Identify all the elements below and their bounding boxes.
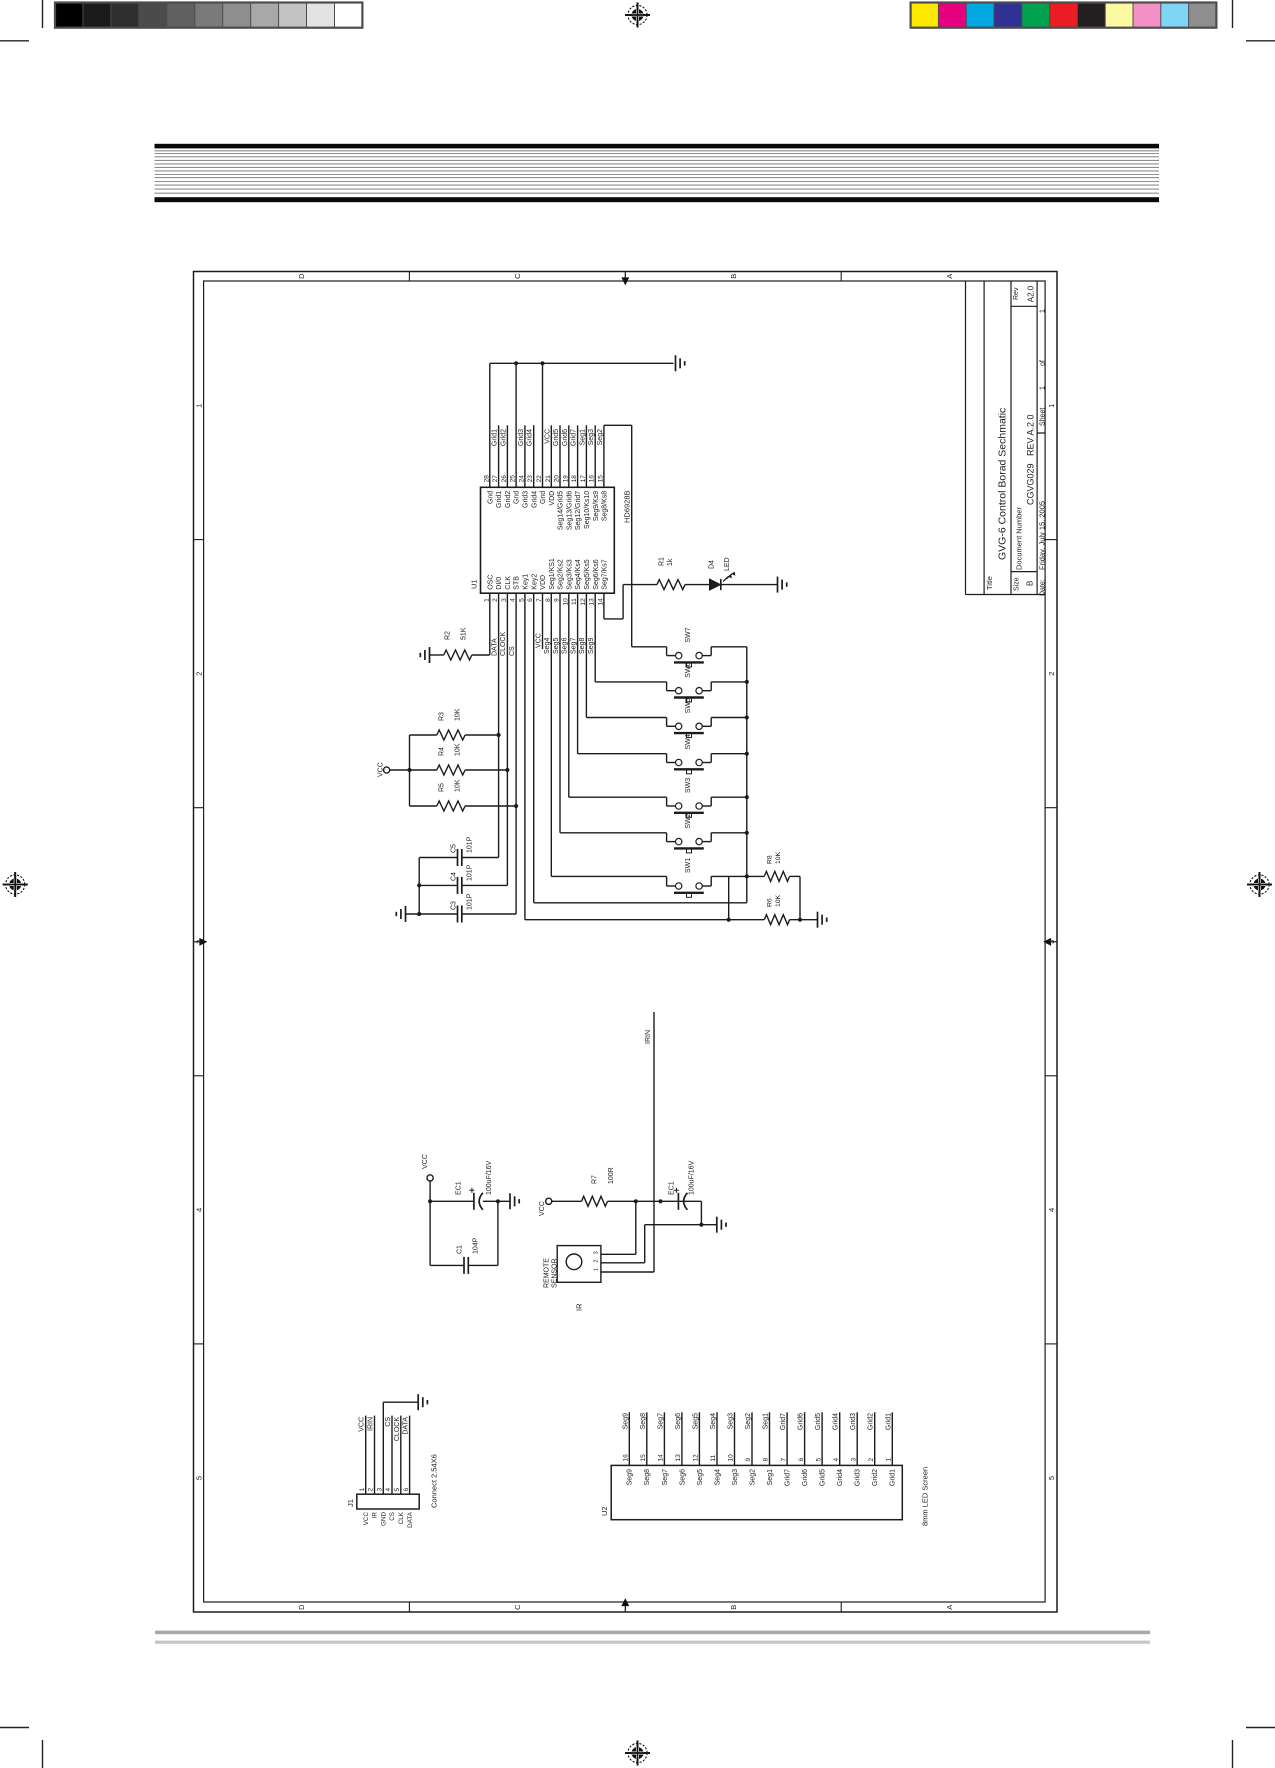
svg-text:VDD: VDD xyxy=(549,491,556,506)
svg-text:10: 10 xyxy=(728,1454,735,1462)
svg-text:Seg8: Seg8 xyxy=(640,1413,647,1429)
svg-text:100uF/16V: 100uF/16V xyxy=(486,1160,493,1195)
svg-text:Seg6: Seg6 xyxy=(679,1469,686,1485)
svg-text:Gnd: Gnd xyxy=(487,491,494,504)
svg-text:R5: R5 xyxy=(439,783,446,792)
svg-text:Grid7: Grid7 xyxy=(571,429,578,446)
svg-text:10K: 10K xyxy=(775,851,782,864)
svg-text:2: 2 xyxy=(868,1458,875,1462)
svg-text:Grid6: Grid6 xyxy=(802,1469,809,1486)
svg-text:OSC: OSC xyxy=(487,575,494,590)
svg-text:B: B xyxy=(729,274,738,279)
svg-text:6: 6 xyxy=(798,1458,805,1462)
svg-text:R3: R3 xyxy=(439,712,446,721)
svg-text:Grid6: Grid6 xyxy=(798,1413,805,1430)
svg-text:SW1: SW1 xyxy=(685,858,692,873)
svg-text:1: 1 xyxy=(886,1458,893,1462)
svg-text:C5: C5 xyxy=(451,844,458,853)
svg-text:R7: R7 xyxy=(592,1175,599,1184)
svg-text:7: 7 xyxy=(780,1458,787,1462)
svg-text:12: 12 xyxy=(693,1454,700,1462)
svg-text:Seg7/Ks7: Seg7/Ks7 xyxy=(602,559,609,589)
svg-text:Seg9/Ks9: Seg9/Ks9 xyxy=(593,491,600,521)
svg-text:3: 3 xyxy=(850,1458,857,1462)
svg-text:2: 2 xyxy=(195,672,204,676)
svg-text:Grid5: Grid5 xyxy=(553,429,560,446)
svg-text:Grid2: Grid2 xyxy=(500,429,507,446)
svg-text:5: 5 xyxy=(815,1458,822,1462)
svg-text:VCC: VCC xyxy=(544,429,551,444)
svg-text:R2: R2 xyxy=(445,631,452,640)
svg-text:EC1: EC1 xyxy=(669,1181,676,1195)
svg-text:2: 2 xyxy=(1047,672,1056,676)
svg-text:Grid1: Grid1 xyxy=(492,429,499,446)
svg-text:C: C xyxy=(513,1604,522,1610)
svg-text:CLOCK: CLOCK xyxy=(500,632,507,656)
svg-text:1: 1 xyxy=(195,404,204,408)
svg-text:1: 1 xyxy=(1047,404,1056,408)
svg-text:101P: 101P xyxy=(467,836,474,853)
svg-text:15: 15 xyxy=(640,1454,647,1462)
svg-text:Seg1: Seg1 xyxy=(579,429,586,445)
svg-text:A2.0: A2.0 xyxy=(1027,285,1036,302)
svg-text:Seg9: Seg9 xyxy=(622,1413,629,1429)
svg-text:5: 5 xyxy=(1047,1476,1056,1480)
svg-text:SW3: SW3 xyxy=(685,778,692,793)
svg-text:D: D xyxy=(297,273,306,279)
svg-text:VCC: VCC xyxy=(378,762,385,777)
svg-text:Seg4: Seg4 xyxy=(714,1469,721,1485)
svg-text:Gnd: Gnd xyxy=(514,491,521,504)
svg-text:Seg13/Grid6: Seg13/Grid6 xyxy=(566,491,573,530)
svg-text:Seg2/Ks2: Seg2/Ks2 xyxy=(558,559,565,589)
svg-text:R6: R6 xyxy=(767,898,774,907)
svg-text:Grid2: Grid2 xyxy=(872,1469,879,1486)
svg-text:CLK: CLK xyxy=(398,1511,405,1524)
svg-text:Seg1: Seg1 xyxy=(763,1413,770,1429)
svg-text:GVG-6 Control Borad Sechmatic: GVG-6 Control Borad Sechmatic xyxy=(997,408,1009,560)
svg-text:Seg7: Seg7 xyxy=(662,1469,669,1485)
svg-text:C: C xyxy=(513,273,522,279)
svg-text:D4: D4 xyxy=(709,560,716,569)
svg-text:Seg3: Seg3 xyxy=(732,1469,739,1485)
svg-text:4: 4 xyxy=(195,1208,204,1212)
svg-text:8mm LED Screen: 8mm LED Screen xyxy=(921,1467,930,1526)
svg-text:6: 6 xyxy=(403,1488,410,1492)
svg-text:IR: IR xyxy=(372,1512,379,1519)
svg-text:Grid6: Grid6 xyxy=(562,429,569,446)
svg-text:11: 11 xyxy=(710,1454,717,1461)
svg-text:C3: C3 xyxy=(451,901,458,910)
svg-text:Grid5: Grid5 xyxy=(820,1469,827,1486)
svg-text:R4: R4 xyxy=(439,747,446,756)
svg-text:100uF/16V: 100uF/16V xyxy=(689,1160,696,1195)
svg-text:Grid4: Grid4 xyxy=(837,1469,844,1486)
svg-text:Connect 2.54X6: Connect 2.54X6 xyxy=(430,1454,439,1508)
svg-text:10K: 10K xyxy=(455,708,462,721)
svg-text:J1: J1 xyxy=(346,1499,355,1507)
svg-text:VCC: VCC xyxy=(359,1417,366,1432)
svg-text:CS: CS xyxy=(509,646,516,656)
svg-text:1: 1 xyxy=(359,1488,366,1492)
svg-text:Seg4: Seg4 xyxy=(544,638,551,654)
svg-text:10K: 10K xyxy=(775,894,782,907)
svg-text:Key1: Key1 xyxy=(523,574,530,590)
svg-text:U2: U2 xyxy=(600,1506,609,1516)
svg-text:Seg2: Seg2 xyxy=(597,429,604,445)
svg-text:101P: 101P xyxy=(467,864,474,881)
svg-text:4: 4 xyxy=(385,1488,392,1492)
svg-text:3: 3 xyxy=(1047,940,1056,944)
svg-text:CLK: CLK xyxy=(505,576,512,590)
svg-text:4: 4 xyxy=(1047,1208,1056,1212)
svg-text:100R: 100R xyxy=(608,1167,615,1184)
svg-text:8: 8 xyxy=(763,1458,770,1462)
svg-text:Seg5/Ks5: Seg5/Ks5 xyxy=(584,559,591,589)
svg-text:Date:: Date: xyxy=(1039,579,1046,596)
svg-text:Grid2: Grid2 xyxy=(868,1413,875,1430)
svg-text:Seg2: Seg2 xyxy=(749,1469,756,1485)
svg-text:IR: IR xyxy=(575,1303,584,1311)
svg-text:Seg8/Ks8: Seg8/Ks8 xyxy=(602,491,609,521)
svg-text:Grid7: Grid7 xyxy=(780,1413,787,1430)
svg-text:9: 9 xyxy=(745,1458,752,1462)
svg-text:Size: Size xyxy=(1014,577,1021,591)
svg-text:SENSOR: SENSOR xyxy=(552,1258,559,1288)
svg-text:104P: 104P xyxy=(473,1237,480,1254)
svg-text:Grid3: Grid3 xyxy=(523,491,530,508)
svg-text:Seg9: Seg9 xyxy=(627,1469,634,1485)
svg-text:Seg4: Seg4 xyxy=(710,1413,717,1429)
svg-text:Seg6/Ks6: Seg6/Ks6 xyxy=(593,559,600,589)
svg-text:Grid3: Grid3 xyxy=(855,1469,862,1486)
svg-text:Grid5: Grid5 xyxy=(815,1413,822,1430)
svg-text:Seg6: Seg6 xyxy=(562,638,569,654)
svg-text:2: 2 xyxy=(594,1260,600,1263)
svg-text:Seg3: Seg3 xyxy=(728,1413,735,1429)
svg-text:Seg9: Seg9 xyxy=(588,638,595,654)
svg-text:REMOTE: REMOTE xyxy=(544,1258,551,1288)
svg-text:5: 5 xyxy=(195,1476,204,1480)
svg-text:Seg5: Seg5 xyxy=(692,1413,699,1429)
svg-text:Seg8: Seg8 xyxy=(644,1469,651,1485)
svg-text:of: of xyxy=(1039,360,1046,366)
svg-text:SW7: SW7 xyxy=(685,627,692,642)
svg-text:13: 13 xyxy=(675,1454,682,1462)
svg-text:CS: CS xyxy=(389,1512,396,1521)
svg-text:R1: R1 xyxy=(659,557,666,566)
svg-text:IRIN: IRIN xyxy=(368,1417,375,1431)
svg-text:Seg14/Grid5: Seg14/Grid5 xyxy=(558,491,565,530)
svg-text:Seg6: Seg6 xyxy=(675,1413,682,1429)
svg-text:3: 3 xyxy=(594,1251,600,1254)
svg-text:Seg5: Seg5 xyxy=(553,638,560,654)
svg-text:Seg3: Seg3 xyxy=(588,429,595,445)
svg-text:Seg1/KS1: Seg1/KS1 xyxy=(549,558,556,590)
svg-text:Grid3: Grid3 xyxy=(850,1413,857,1430)
svg-text:VCC: VCC xyxy=(422,1154,429,1169)
svg-text:VDD: VDD xyxy=(540,575,547,590)
svg-text:CGVG029 REV A.2.0: CGVG029 REV A.2.0 xyxy=(1026,414,1036,505)
svg-text:Seg2: Seg2 xyxy=(745,1413,752,1429)
svg-text:Gnd: Gnd xyxy=(540,491,547,504)
svg-text:C1: C1 xyxy=(457,1245,464,1254)
svg-text:Seg1: Seg1 xyxy=(767,1469,774,1485)
svg-text:101P: 101P xyxy=(467,893,474,910)
svg-text:10K: 10K xyxy=(455,779,462,792)
svg-text:3: 3 xyxy=(377,1488,384,1492)
svg-text:Grid4: Grid4 xyxy=(833,1413,840,1430)
svg-text:10K: 10K xyxy=(455,743,462,756)
svg-text:1: 1 xyxy=(594,1268,600,1271)
svg-text:1: 1 xyxy=(1039,386,1046,390)
svg-text:DATA: DATA xyxy=(407,1511,414,1528)
svg-text:CS: CS xyxy=(385,1417,392,1427)
svg-text:A: A xyxy=(945,1605,954,1610)
svg-text:Friday, July 15, 2005: Friday, July 15, 2005 xyxy=(1037,501,1046,570)
svg-text:Seg12/Grid7: Seg12/Grid7 xyxy=(575,491,582,530)
svg-text:Document Number: Document Number xyxy=(1015,507,1024,570)
svg-text:Seg10/Ks10: Seg10/Ks10 xyxy=(584,491,591,529)
svg-text:GND: GND xyxy=(381,1512,388,1526)
svg-text:Key2: Key2 xyxy=(531,574,538,590)
svg-text:51K: 51K xyxy=(461,627,468,640)
svg-text:LED: LED xyxy=(724,557,731,571)
svg-text:1: 1 xyxy=(1039,309,1046,313)
svg-text:HD6928B: HD6928B xyxy=(623,490,632,523)
svg-text:Grid1: Grid1 xyxy=(890,1469,897,1486)
svg-text:Seg5: Seg5 xyxy=(697,1469,704,1485)
svg-text:Grid4: Grid4 xyxy=(531,491,538,508)
svg-text:1k: 1k xyxy=(667,558,674,566)
svg-text:EC1: EC1 xyxy=(456,1181,463,1195)
svg-text:B: B xyxy=(729,1605,738,1610)
svg-text:Rev: Rev xyxy=(1013,287,1020,300)
svg-text:Sheet: Sheet xyxy=(1039,408,1046,426)
svg-text:DI/0: DI/0 xyxy=(496,577,503,590)
svg-text:B: B xyxy=(1026,581,1035,586)
svg-text:Grid3: Grid3 xyxy=(518,429,525,446)
svg-text:D: D xyxy=(297,1604,306,1610)
svg-text:Grid1: Grid1 xyxy=(496,491,503,508)
svg-text:R8: R8 xyxy=(767,855,774,864)
svg-text:3: 3 xyxy=(195,940,204,944)
svg-text:4: 4 xyxy=(833,1458,840,1462)
svg-text:DATA: DATA xyxy=(403,1417,410,1435)
svg-text:VCC: VCC xyxy=(539,1201,546,1216)
svg-text:Title: Title xyxy=(985,576,994,590)
svg-text:VCC: VCC xyxy=(363,1512,370,1526)
svg-text:Seg3/Ks3: Seg3/Ks3 xyxy=(566,559,573,589)
svg-text:Grid1: Grid1 xyxy=(885,1413,892,1430)
svg-text:5: 5 xyxy=(394,1488,401,1492)
svg-text:Seg7: Seg7 xyxy=(570,638,577,654)
svg-text:A: A xyxy=(945,274,954,279)
svg-text:Grid7: Grid7 xyxy=(785,1469,792,1486)
svg-text:STB: STB xyxy=(514,576,521,590)
svg-text:C4: C4 xyxy=(451,872,458,881)
svg-text:Seg8: Seg8 xyxy=(579,638,586,654)
svg-text:Grid4: Grid4 xyxy=(527,429,534,446)
svg-text:DATA: DATA xyxy=(491,638,498,656)
svg-text:Grid2: Grid2 xyxy=(505,491,512,508)
svg-text:Seg7: Seg7 xyxy=(657,1413,664,1429)
svg-text:2: 2 xyxy=(368,1488,375,1492)
svg-text:Seg4/Ks4: Seg4/Ks4 xyxy=(575,559,582,589)
svg-text:CLOCK: CLOCK xyxy=(394,1417,401,1441)
svg-text:IRIN: IRIN xyxy=(645,1030,652,1044)
svg-text:U1: U1 xyxy=(470,579,479,589)
svg-text:VCC: VCC xyxy=(535,633,542,648)
svg-text:16: 16 xyxy=(623,1454,630,1462)
svg-text:14: 14 xyxy=(658,1454,665,1462)
